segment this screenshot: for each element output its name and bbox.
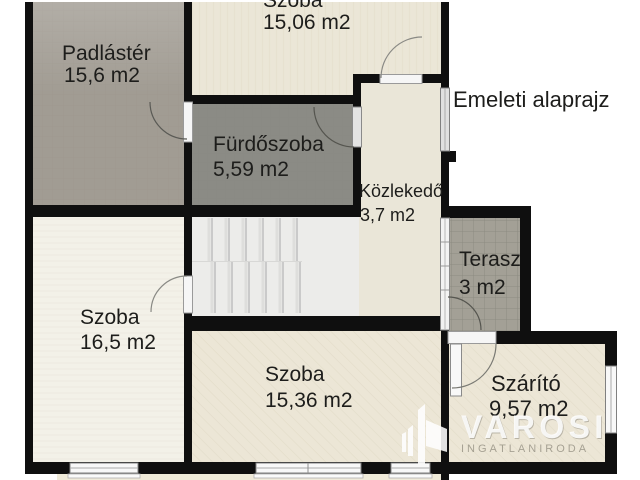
svg-text:16,5 m2: 16,5 m2 bbox=[80, 331, 156, 354]
svg-text:Padlástér: Padlástér bbox=[62, 42, 151, 65]
svg-text:Szoba: Szoba bbox=[265, 363, 325, 386]
svg-text:Fürdőszoba: Fürdőszoba bbox=[213, 133, 324, 156]
svg-text:INGATLANIRODA: INGATLANIRODA bbox=[461, 443, 589, 455]
svg-text:Közlekedő: Közlekedő bbox=[359, 181, 443, 201]
svg-text:5,59 m2: 5,59 m2 bbox=[213, 158, 289, 181]
svg-text:15,06 m2: 15,06 m2 bbox=[263, 11, 351, 34]
svg-text:Szoba: Szoba bbox=[80, 306, 140, 329]
svg-text:VAROSI: VAROSI bbox=[461, 409, 608, 445]
svg-text:15,6 m2: 15,6 m2 bbox=[64, 64, 140, 87]
svg-text:Emeleti alaprajz: Emeleti alaprajz bbox=[453, 87, 610, 112]
svg-text:15,36 m2: 15,36 m2 bbox=[265, 389, 353, 412]
svg-text:3 m2: 3 m2 bbox=[459, 276, 506, 299]
svg-text:Terasz: Terasz bbox=[459, 248, 521, 271]
svg-text:3,7 m2: 3,7 m2 bbox=[360, 205, 415, 225]
svg-text:Szárító: Szárító bbox=[491, 371, 561, 396]
